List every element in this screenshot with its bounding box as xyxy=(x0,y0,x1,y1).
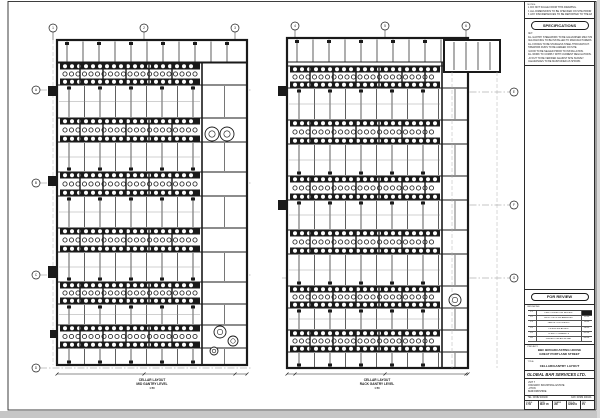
svg-text:1: 1 xyxy=(52,26,54,30)
info-field: DATEMAY 05 xyxy=(539,401,553,409)
svg-text:3: 3 xyxy=(234,26,236,30)
drawing-info-fields: SCALE1:50DATEMAY 05DRAWNJWDRG No4205/01R… xyxy=(525,400,594,409)
info-field: SCALE1:50 xyxy=(525,401,539,409)
notes-list: 1. DO NOT SCALE FROM THIS DRAWING.2. ALL… xyxy=(528,6,592,16)
notes-section: NOTES: 1. DO NOT SCALE FROM THIS DRAWING… xyxy=(525,2,594,19)
revision-cell: CLIENT COMMENTS xyxy=(537,333,581,335)
revision-cell: KEG POSITIONS AMENDED xyxy=(537,317,581,319)
specification-text: KEY:ALL GANTRY STEELWORK TO BE GALVANISE… xyxy=(525,31,594,66)
cellar-plan-canvas: 123ABCDCELLAR LAYOUTMID GANTRY LEVEL1:50… xyxy=(0,0,600,418)
specifications-header: SPECIFICATIONS xyxy=(531,21,589,30)
address-line: BEDFORDSHIRE xyxy=(528,390,592,393)
revision-table: P1FIRST ISSUE FOR REVIEWP2KEG POSITIONS … xyxy=(528,310,592,343)
revisions-label: REVISIONS xyxy=(528,306,592,309)
revision-row: P6ISSUED FOR APPROVAL09.06 xyxy=(528,337,592,342)
title-block-spacer xyxy=(525,66,594,290)
svg-text:B: B xyxy=(35,181,37,185)
revision-cell: GANTRY EXTENDED xyxy=(537,322,581,324)
revision-cell: P1 xyxy=(528,311,537,315)
revision-cell xyxy=(581,311,592,315)
info-field: REVP1 xyxy=(581,401,594,409)
project-section: PROJECT: BBC BROADCASTING HOUSE GREAT PO… xyxy=(525,345,594,359)
company-section: GLOBAL BAR SERVICES LTD. UNIT 7KINGSWAY … xyxy=(525,371,594,409)
svg-text:MID GANTRY LEVEL: MID GANTRY LEVEL xyxy=(136,382,167,386)
revision-cell: PIPEWORK ADDED xyxy=(537,328,581,330)
company-address-lines: UNIT 7KINGSWAY INDUSTRIAL ESTATELUTONBED… xyxy=(528,381,592,394)
revision-cell: FIRST ISSUE FOR REVIEW xyxy=(537,312,581,314)
svg-text:2: 2 xyxy=(143,26,145,30)
revision-cell: 12.05 xyxy=(581,316,592,320)
drawing-title: CELLAR/GANTRY LAYOUT xyxy=(528,364,592,368)
revision-cell: 26.05 xyxy=(581,327,592,331)
info-field: DRG No4205/01 xyxy=(567,401,581,409)
company-tel: TEL: 01582 400100 xyxy=(528,397,548,399)
specification-lines: KEY:ALL GANTRY STEELWORK TO BE GALVANISE… xyxy=(528,32,592,63)
revision-cell: P4 xyxy=(528,327,537,331)
revision-cell: P2 xyxy=(528,316,537,320)
status-section: FOR REVIEW xyxy=(525,290,594,305)
revision-cell: P3 xyxy=(528,321,537,325)
svg-text:F: F xyxy=(513,203,515,207)
title-block: NOTES: 1. DO NOT SCALE FROM THIS DRAWING… xyxy=(524,1,595,410)
revisions-section: REVISIONS P1FIRST ISSUE FOR REVIEWP2KEG … xyxy=(525,305,594,345)
revision-cell: P5 xyxy=(528,332,537,336)
specification-line: CLEARANCES TO BE MAINTAINED AS SHOWN. xyxy=(528,60,592,63)
company-fax: FAX: 01582 400101 xyxy=(571,397,591,399)
svg-text:4: 4 xyxy=(294,24,296,28)
svg-text:1:50: 1:50 xyxy=(374,386,380,390)
status-badge: FOR REVIEW xyxy=(531,293,589,302)
revision-cell: 19.05 xyxy=(581,321,592,325)
svg-text:5: 5 xyxy=(384,24,386,28)
company-name: GLOBAL BAR SERVICES LTD. xyxy=(525,371,594,380)
info-field: DRAWNJW xyxy=(553,401,567,409)
drawing-title-section: TITLE: CELLAR/GANTRY LAYOUT xyxy=(525,359,594,370)
revision-cell: P6 xyxy=(528,337,537,341)
revision-cell: 09.06 xyxy=(581,337,592,341)
note-line: 3. ANY DISCREPANCIES TO BE REPORTED TO T… xyxy=(528,13,592,16)
svg-text:E: E xyxy=(513,90,515,94)
svg-text:1:50: 1:50 xyxy=(149,386,155,390)
drawing-sheet: 123ABCDCELLAR LAYOUTMID GANTRY LEVEL1:50… xyxy=(0,0,600,418)
svg-text:6: 6 xyxy=(465,24,467,28)
company-address: UNIT 7KINGSWAY INDUSTRIAL ESTATELUTONBED… xyxy=(525,379,594,395)
revision-cell: ISSUED FOR APPROVAL xyxy=(537,338,581,340)
specifications-section: SPECIFICATIONS xyxy=(525,19,594,31)
svg-text:RACK GANTRY LEVEL: RACK GANTRY LEVEL xyxy=(360,382,395,386)
project-line-2: GREAT PORTLAND STREET xyxy=(528,353,592,357)
page-edge-shadow-bottom xyxy=(0,411,600,418)
revision-cell: 02.06 xyxy=(581,332,592,336)
